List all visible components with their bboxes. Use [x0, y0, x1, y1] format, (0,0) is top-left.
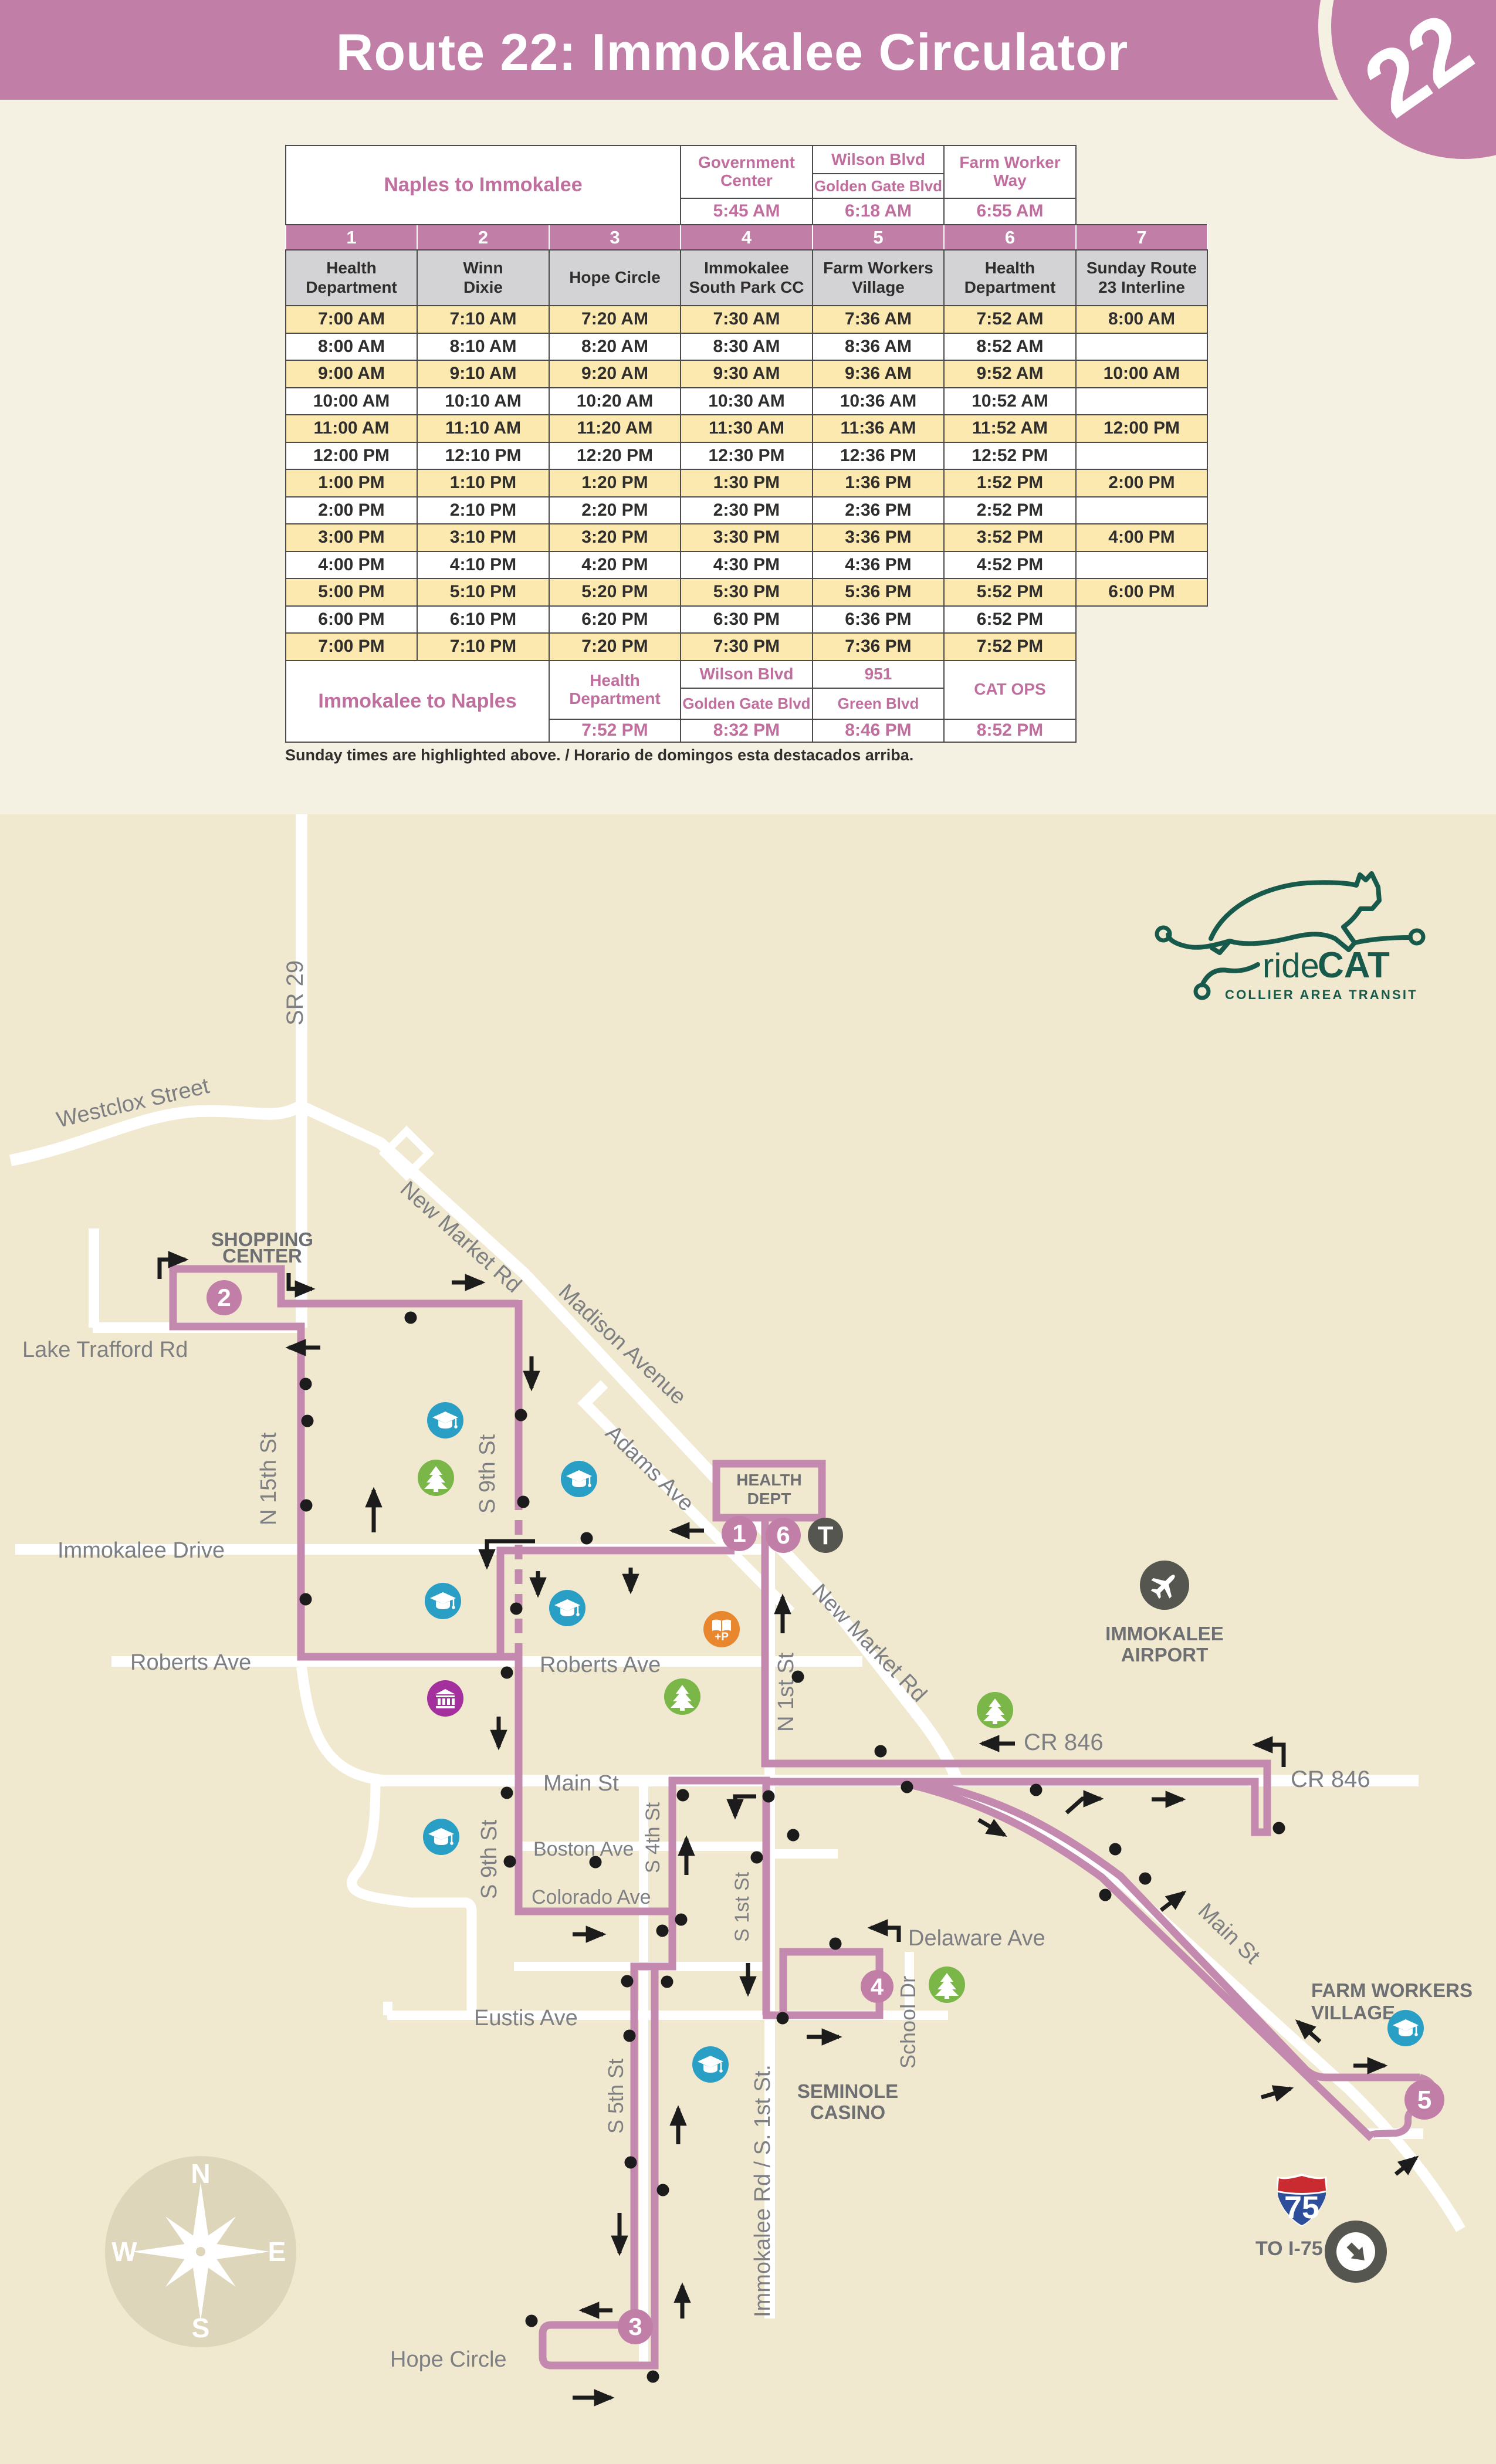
svg-text:6: 6 [776, 1521, 790, 1549]
svg-text:N: N [191, 2158, 210, 2189]
svg-text:Lake Trafford Rd: Lake Trafford Rd [22, 1338, 188, 1362]
svg-text:3: 3 [628, 2313, 642, 2340]
svg-text:S 5th St: S 5th St [604, 2059, 628, 2134]
svg-text:Colorado Ave: Colorado Ave [532, 1886, 651, 1908]
svg-text:S 1st St: S 1st St [731, 1871, 753, 1942]
svg-text:FARM WORKERS: FARM WORKERS [1311, 1979, 1473, 2001]
svg-text:Main St: Main St [543, 1771, 619, 1796]
svg-text:Immokalee Drive: Immokalee Drive [57, 1538, 225, 1563]
svg-text:+P: +P [715, 1631, 729, 1643]
svg-text:5: 5 [1417, 2086, 1431, 2114]
svg-text:T: T [818, 1521, 834, 1550]
svg-text:Hope Circle: Hope Circle [390, 2347, 507, 2372]
svg-text:Immokalee Rd / S. 1st St.: Immokalee Rd / S. 1st St. [750, 2064, 775, 2317]
svg-text:HEALTH: HEALTH [736, 1471, 801, 1489]
svg-text:S 4th St: S 4th St [642, 1802, 664, 1873]
svg-text:4: 4 [871, 1974, 884, 2000]
svg-text:S 9th St: S 9th St [477, 1819, 502, 1899]
svg-text:S: S [192, 2313, 210, 2343]
svg-text:N 1st St: N 1st St [774, 1652, 798, 1732]
svg-text:CR 846: CR 846 [1291, 1766, 1370, 1792]
svg-text:CR 846: CR 846 [1024, 1729, 1104, 1755]
svg-text:IMMOKALEE: IMMOKALEE [1105, 1623, 1224, 1644]
svg-text:Boston Ave: Boston Ave [533, 1838, 634, 1860]
svg-text:1: 1 [732, 1519, 746, 1547]
svg-text:ride: ride [1263, 947, 1319, 985]
svg-text:Delaware Ave: Delaware Ave [908, 1926, 1045, 1951]
svg-text:DEPT: DEPT [747, 1490, 791, 1508]
svg-text:School Dr: School Dr [896, 1976, 920, 2069]
svg-text:SEMINOLE: SEMINOLE [797, 2080, 898, 2102]
svg-text:COLLIER AREA TRANSIT: COLLIER AREA TRANSIT [1225, 987, 1418, 1002]
svg-text:CENTER: CENTER [222, 1245, 302, 1267]
svg-text:Roberts Ave: Roberts Ave [540, 1653, 661, 1677]
svg-text:VILLAGE: VILLAGE [1311, 2002, 1395, 2023]
svg-text:Eustis Ave: Eustis Ave [474, 2006, 578, 2030]
svg-text:CASINO: CASINO [810, 2101, 885, 2123]
svg-text:2: 2 [217, 1284, 231, 1311]
svg-text:CAT: CAT [1318, 945, 1390, 986]
svg-text:E: E [268, 2236, 286, 2267]
svg-text:75: 75 [1284, 2190, 1319, 2225]
svg-text:N 15th St: N 15th St [256, 1432, 281, 1525]
svg-text:AIRPORT: AIRPORT [1121, 1644, 1209, 1666]
svg-text:SR 29: SR 29 [282, 960, 308, 1025]
svg-text:TO I-75: TO I-75 [1255, 2238, 1323, 2260]
svg-text:W: W [111, 2236, 137, 2267]
svg-text:Roberts Ave: Roberts Ave [130, 1650, 251, 1675]
svg-text:S 9th St: S 9th St [475, 1434, 500, 1514]
